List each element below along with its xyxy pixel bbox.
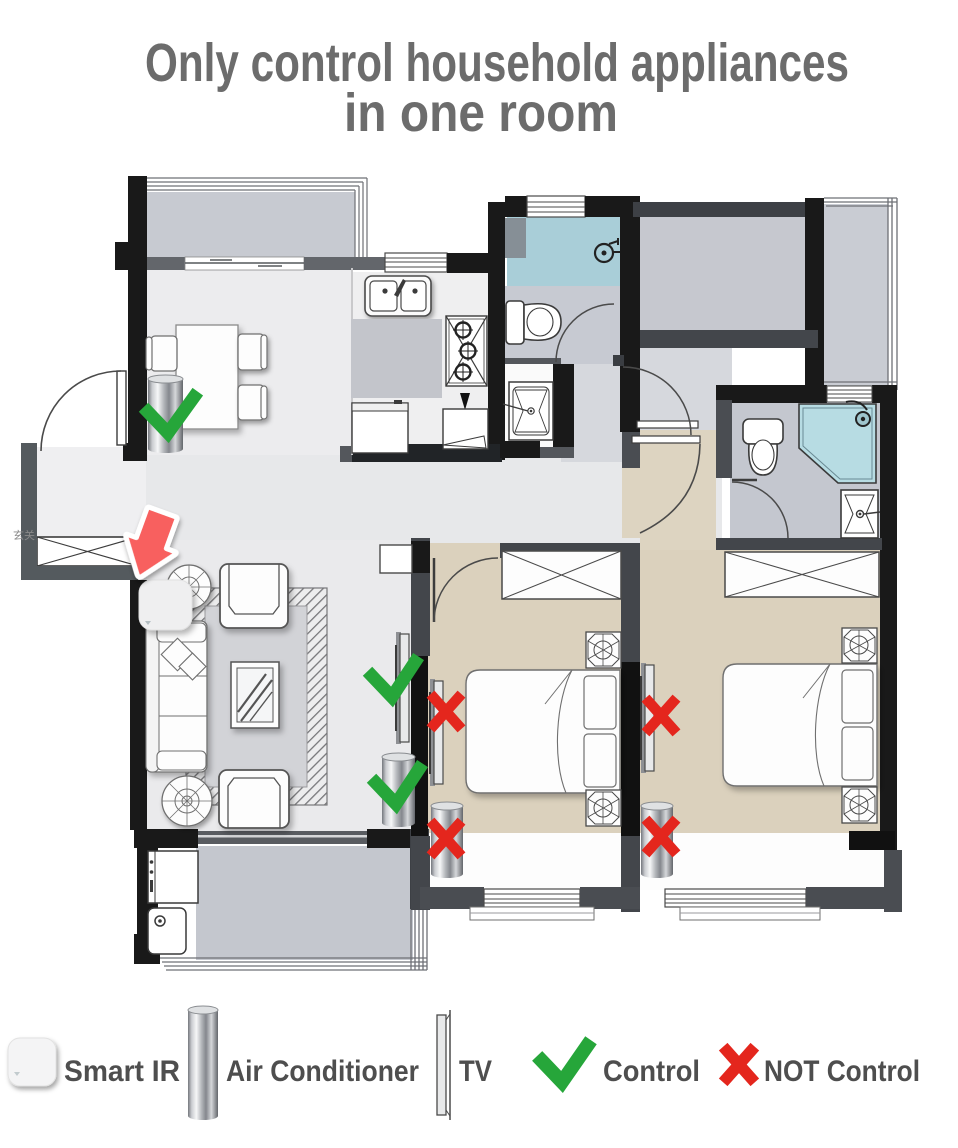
svg-text:Air Conditioner: Air Conditioner	[226, 1055, 419, 1088]
svg-text:Smart IR: Smart IR	[64, 1055, 180, 1088]
svg-text:in one room: in one room	[344, 83, 618, 143]
svg-text:NOT Control: NOT Control	[764, 1055, 920, 1088]
svg-text:TV: TV	[459, 1055, 492, 1088]
svg-text:玄关: 玄关	[13, 528, 35, 542]
svg-text:Control: Control	[603, 1055, 700, 1088]
